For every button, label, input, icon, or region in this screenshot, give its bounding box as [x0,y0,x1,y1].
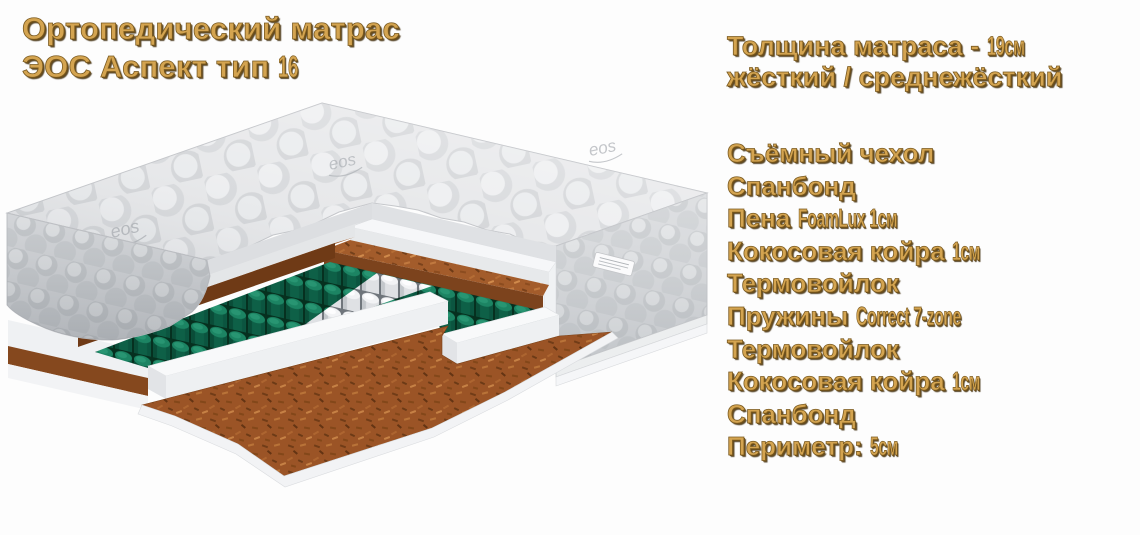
layer-feature-list: Съёмный чехол Спанбонд Пена FoamLux 1см … [727,137,1031,463]
brand-logo: eos [585,135,623,164]
feature-line: Кокосовая койра 1см [727,235,1031,268]
product-card: eos eos eos [0,0,1140,535]
product-title-line2: ЭОС Аспект тип 16 [22,48,400,86]
product-title-line1: Ортопедический матрас [22,10,400,48]
feature-line: Пружины Correct 7-zone [727,300,1031,333]
feature-line: Кокосовая койра 1см [727,365,1031,398]
feature-line: Спанбонд [727,398,1031,431]
feature-line: Спанбонд [727,170,1031,203]
product-title: Ортопедический матрас ЭОС Аспект тип 16 [22,10,400,86]
feature-line: Пена FoamLux 1см [727,202,1031,235]
product-type-number: 16 [278,48,298,86]
feature-line: Периметр: 5см [727,430,1031,463]
thickness-value: 19см [987,31,1025,62]
feature-line: Термовойлок [727,267,1031,300]
thickness-line: Толщина матраса - 19см [727,31,1062,62]
feature-line: Съёмный чехол [727,137,1031,170]
thickness-spec: Толщина матраса - 19см жёсткий / среднеж… [727,31,1062,93]
feature-line: Термовойлок [727,333,1031,366]
brand-logo-text: eos [587,136,618,160]
firmness-line: жёсткий / среднежёсткий [727,62,1062,93]
